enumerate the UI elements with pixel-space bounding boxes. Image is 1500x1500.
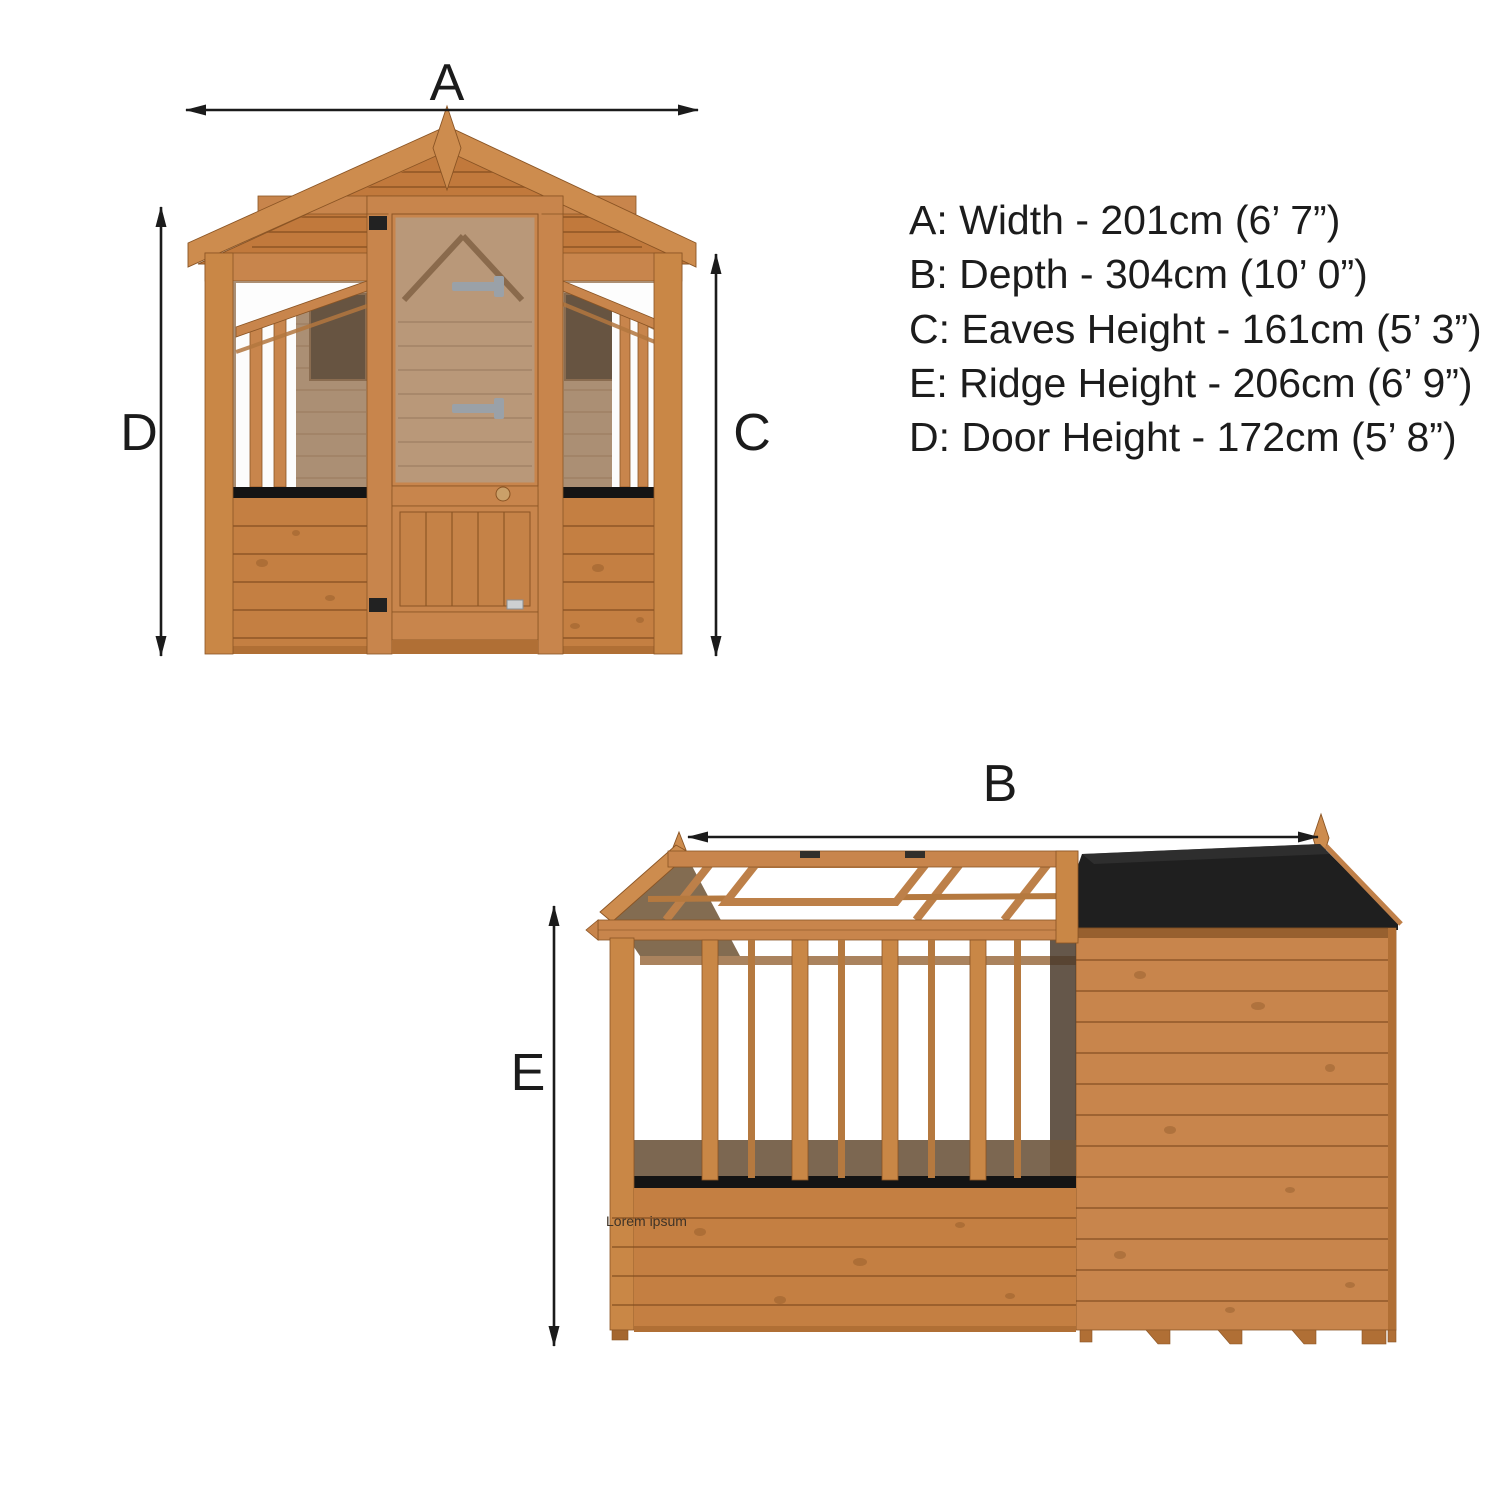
greenhouse-cladding [634,1188,1076,1330]
front-view [188,106,696,654]
glazing-opening [236,310,296,487]
greenhouse-foot [612,1330,628,1340]
door-height-dim-label: D [120,404,158,462]
spec-list: A: Width - 201cm (6’ 7”) B: Depth - 304c… [909,197,1482,460]
spec-line-ridge-height: E: Ridge Height - 206cm (6’ 9”) [909,360,1473,406]
front-corner-post-right [654,253,682,654]
spec-line-width: A: Width - 201cm (6’ 7”) [909,197,1340,243]
side-greenhouse-section: Lorem ipsum [586,832,1078,1340]
diagram-svg: A D C A: Width - 201cm (6’ 7”) B: Depth … [0,0,1500,1500]
door-glass [392,214,538,486]
staging-sill [210,487,367,498]
shed-corner-trim [1388,928,1396,1330]
vent-hinge [905,851,925,858]
ridge-beam [668,851,1078,867]
front-left-glazed-section [210,281,367,498]
door-latch [507,600,523,609]
door-hinge-black-top [369,216,387,230]
width-dim-label: A [430,54,465,112]
base-rail [634,1326,1076,1332]
roof-bar [1004,864,1048,920]
side-shed-section [1058,814,1401,1344]
shed-dimension-diagram: A D C A: Width - 201cm (6’ 7”) B: Depth … [0,0,1500,1500]
ridge-height-dim-label: E [511,1044,546,1102]
door-post-right [538,196,563,654]
spec-line-eaves-height: C: Eaves Height - 161cm (5’ 3”) [909,306,1482,352]
eaves-height-dim-label: C [733,404,771,462]
spec-line-depth: B: Depth - 304cm (10’ 0”) [909,251,1368,297]
greenhouse-corner-post [610,938,634,1330]
door-bottom-rail [392,612,538,640]
watermark-text: Lorem ipsum [606,1213,687,1229]
depth-dim-label: B [983,755,1018,813]
door-hinge-black-bottom [369,598,387,612]
shed-skid-feet [1080,1330,1396,1344]
glazing-mullion [620,313,630,487]
door-knob [496,487,510,501]
junction-post [1056,851,1078,943]
side-view: Lorem ipsum [586,814,1401,1344]
door-lower-panel [400,512,530,606]
front-corner-post-left [205,253,233,654]
roof-vent-window [726,864,926,902]
glazing-mullion [638,321,648,487]
door-post-left [367,196,392,654]
spec-line-door-height: D: Door Height - 172cm (5’ 8”) [909,414,1457,460]
door-threshold [392,640,538,654]
door-mid-rail [392,486,538,506]
front-door [367,196,563,654]
vent-hinge [800,851,820,858]
roof-shadow [1076,928,1396,938]
eaves-beam-tip [586,920,598,940]
